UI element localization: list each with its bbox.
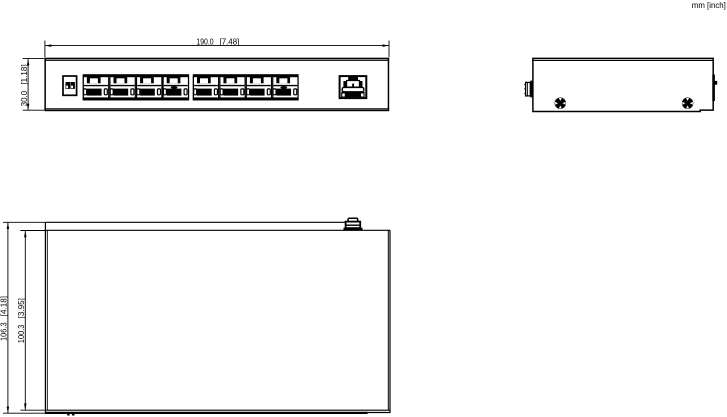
- svg-text:100.3: 100.3: [16, 324, 26, 343]
- svg-text:[4.18]: [4.18]: [0, 296, 9, 316]
- svg-text:106.3: 106.3: [0, 322, 9, 341]
- svg-text:mm [inch]: mm [inch]: [692, 0, 726, 10]
- svg-text:[7.48]: [7.48]: [220, 37, 240, 47]
- svg-text:190.0: 190.0: [196, 37, 213, 47]
- svg-text:[3.95]: [3.95]: [16, 298, 26, 318]
- svg-text:30.0: 30.0: [19, 91, 29, 107]
- svg-text:[1.18]: [1.18]: [19, 64, 29, 84]
